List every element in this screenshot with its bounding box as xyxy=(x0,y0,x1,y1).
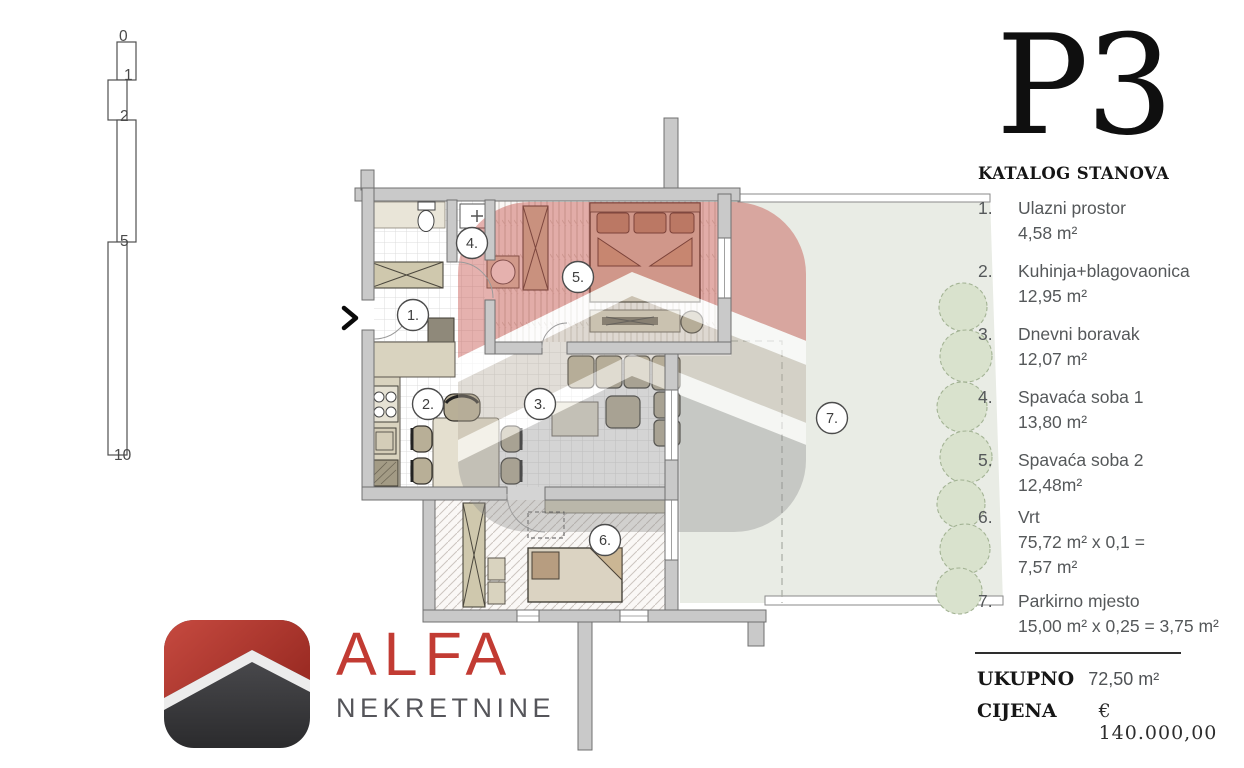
price-label: CIJENA xyxy=(977,700,1057,722)
room-list-item-1: 1. Ulazni prostor 4,58 m² xyxy=(978,196,1240,246)
svg-text:6.: 6. xyxy=(599,533,611,549)
item-number: 2. xyxy=(978,259,1018,309)
item-area: 12,07 m² xyxy=(1018,349,1087,369)
scale-label-2: 2 xyxy=(120,108,129,125)
room-label-5: 5. xyxy=(563,262,594,293)
item-name: Parkirno mjesto xyxy=(1018,591,1140,611)
total-value: 72,50 m² xyxy=(1088,669,1159,690)
logo-subtitle: NEKRETNINE xyxy=(336,693,555,724)
room-list-item-6: 6. Vrt 75,72 m² x 0,1 = 7,57 m² xyxy=(978,505,1240,580)
item-name: Dnevni boravak xyxy=(1018,324,1140,344)
item-number: 1. xyxy=(978,196,1018,246)
price-row: CIJENA € 140.000,00 xyxy=(977,700,1237,744)
item-name: Spavaća soba 1 xyxy=(1018,387,1144,407)
logo-name: ALFA xyxy=(336,624,555,685)
room-label-3: 3. xyxy=(525,389,556,420)
item-name: Spavaća soba 2 xyxy=(1018,450,1144,470)
item-area: 12,95 m² xyxy=(1018,286,1087,306)
scale-label-1: 1 xyxy=(124,67,133,84)
item-number: 6. xyxy=(978,505,1018,580)
item-number: 5. xyxy=(978,448,1018,498)
scale-label-10: 10 xyxy=(114,447,132,464)
item-number: 3. xyxy=(978,322,1018,372)
summary-divider xyxy=(975,652,1181,654)
scale-label-5: 5 xyxy=(120,233,129,250)
toilet-tank xyxy=(418,202,435,210)
kitchen-counter xyxy=(370,342,455,377)
room-list-item-3: 3. Dnevni boravak 12,07 m² xyxy=(978,322,1240,372)
room-label-7: 7. xyxy=(817,403,848,434)
item-number: 7. xyxy=(978,589,1018,639)
item-number: 4. xyxy=(978,385,1018,435)
item-name: Vrt xyxy=(1018,507,1040,527)
total-label: UKUPNO xyxy=(977,668,1074,690)
price-value: € 140.000,00 xyxy=(1099,700,1237,744)
svg-text:7.: 7. xyxy=(826,411,838,427)
room-label-4: 4. xyxy=(457,228,488,259)
scale-bar: 0 1 2 5 10 xyxy=(95,15,165,470)
item-area: 13,80 m² xyxy=(1018,412,1087,432)
room-list-item-2: 2. Kuhinja+blagovaonica 12,95 m² xyxy=(978,259,1240,309)
svg-text:1.: 1. xyxy=(407,308,419,324)
item-area-2: 7,57 m² xyxy=(1018,557,1077,577)
alfa-logo-icon xyxy=(162,618,312,750)
room-label-1: 1. xyxy=(398,300,429,331)
single-bed xyxy=(528,548,622,602)
shoe-cabinet xyxy=(428,318,454,342)
svg-text:5.: 5. xyxy=(572,270,584,286)
item-area: 4,58 m² xyxy=(1018,223,1077,243)
catalog-page: 0 1 2 5 10 xyxy=(0,0,1244,768)
item-area: 15,00 m² x 0,25 = 3,75 m² xyxy=(1018,616,1219,636)
room-label-6: 6. xyxy=(590,525,621,556)
room-list-item-5: 5. Spavaća soba 2 12,48m² xyxy=(978,448,1240,498)
svg-text:2.: 2. xyxy=(422,397,434,413)
toilet-icon xyxy=(418,211,434,232)
company-logo: ALFA NEKRETNINE xyxy=(162,618,555,750)
unit-title: P3 xyxy=(996,14,1226,159)
item-name: Kuhinja+blagovaonica xyxy=(1018,261,1190,281)
room-list-item-4: 4. Spavaća soba 1 13,80 m² xyxy=(978,385,1240,435)
item-area: 12,48m² xyxy=(1018,475,1082,495)
item-area: 75,72 m² x 0,1 = xyxy=(1018,532,1145,552)
scale-label-0: 0 xyxy=(119,28,128,45)
catalog-heading: KATALOG STANOVA xyxy=(978,164,1169,183)
room-label-2: 2. xyxy=(413,389,444,420)
item-name: Ulazni prostor xyxy=(1018,198,1126,218)
svg-text:4.: 4. xyxy=(466,236,478,252)
room-list-item-7: 7. Parkirno mjesto 15,00 m² x 0,25 = 3,7… xyxy=(978,589,1240,639)
entrance-arrow-icon xyxy=(344,308,356,328)
total-row: UKUPNO 72,50 m² xyxy=(977,668,1237,690)
svg-text:3.: 3. xyxy=(534,397,546,413)
